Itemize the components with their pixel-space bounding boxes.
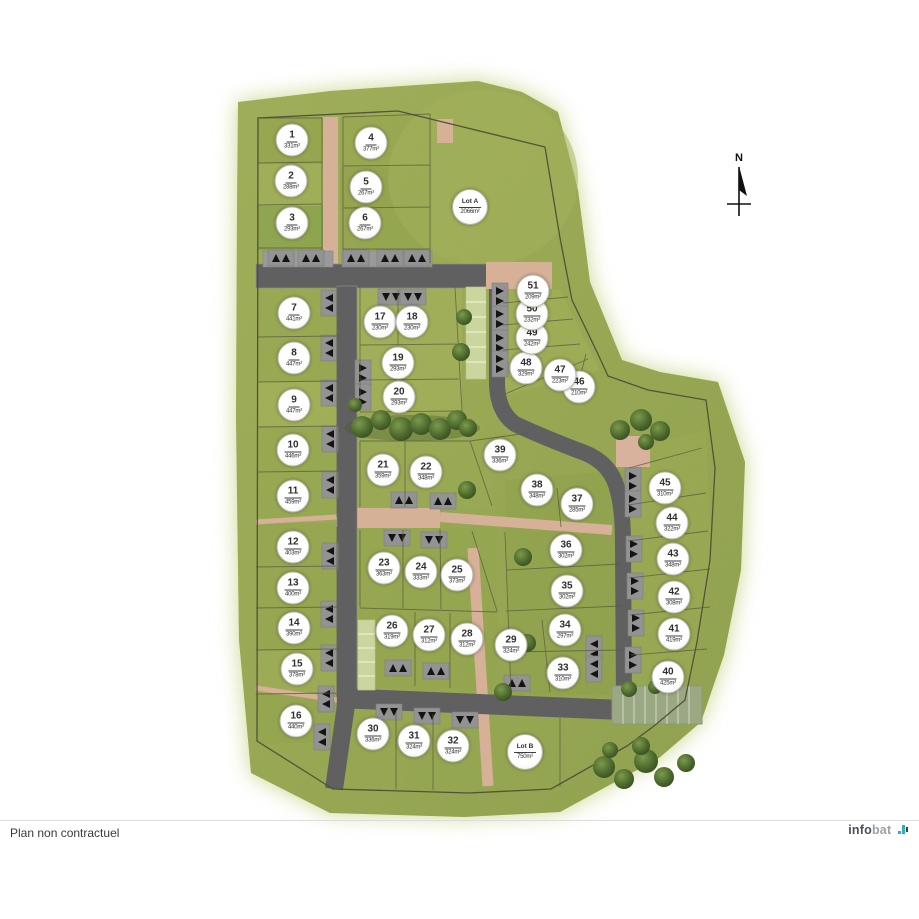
lot-number: 5	[360, 178, 372, 190]
lot-area: 293m²	[391, 401, 407, 407]
lot-number: 12	[284, 538, 301, 550]
lot-area: 425m²	[660, 681, 676, 687]
lot-area: 324m²	[406, 745, 422, 751]
lot-number: 38	[528, 481, 545, 493]
lot-label-29: 29324m²	[495, 629, 528, 662]
lot-label-38: 38348m²	[521, 474, 554, 507]
lot-area: 285m²	[569, 508, 585, 514]
lot-area: 348m²	[529, 494, 545, 500]
lot-label-14: 14390m²	[278, 612, 311, 645]
lot-label-37: 37285m²	[561, 488, 594, 521]
lot-area: 312m²	[421, 639, 437, 645]
lot-number: 43	[664, 550, 681, 562]
lot-label-39: 39336m²	[484, 439, 517, 472]
lot-number: 20	[390, 388, 407, 400]
lot-area: 333m²	[413, 576, 429, 582]
lot-number: 13	[284, 579, 301, 591]
lot-area: 336m²	[492, 459, 508, 465]
lot-label-35: 35302m²	[551, 575, 584, 608]
lot-area: 750m²	[517, 754, 533, 760]
lot-label-44: 44322m²	[656, 507, 689, 540]
lot-number: 14	[285, 619, 302, 631]
lot-label-41: 41419m²	[658, 618, 691, 651]
lot-number: 37	[568, 495, 585, 507]
lot-area: 441m²	[286, 317, 302, 323]
lot-area: 419m²	[666, 638, 682, 644]
lot-area: 267m²	[357, 227, 373, 233]
lot-label-23: 23363m²	[368, 552, 401, 585]
lot-area: 302m²	[558, 554, 574, 560]
lot-area: 390m²	[286, 632, 302, 638]
lot-label-30: 30336m²	[357, 718, 390, 751]
lot-area: 297m²	[557, 634, 573, 640]
lot-label-26: 26319m²	[376, 615, 409, 648]
lot-label-45: 45310m²	[649, 472, 682, 505]
lot-area: 446m²	[285, 454, 301, 460]
lot-area: 319m²	[384, 635, 400, 641]
lot-number: 32	[444, 737, 461, 749]
lot-label-12: 12403m²	[277, 531, 310, 564]
lot-label-13: 13400m²	[277, 572, 310, 605]
lot-label-15: 15378m²	[281, 653, 314, 686]
lot-number: 44	[663, 514, 680, 526]
lot-area: 447m²	[286, 362, 302, 368]
infobat-logo-text-dark: info	[848, 823, 872, 837]
lot-number: 48	[517, 359, 534, 371]
lot-area: 459m²	[285, 500, 301, 506]
lot-area: 378m²	[289, 673, 305, 679]
lot-number: 9	[288, 396, 300, 408]
lot-label-5: 5267m²	[350, 171, 383, 204]
footer-separator	[0, 820, 919, 821]
lot-label-4: 4377m²	[355, 127, 388, 160]
lot-label-10: 10446m²	[277, 434, 310, 467]
lot-label-21: 21359m²	[367, 454, 400, 487]
lot-area: 310m²	[657, 492, 673, 498]
lot-label-lot-b: Lot B750m²	[507, 734, 543, 770]
lot-label-31: 31324m²	[398, 725, 431, 758]
lot-label-36: 36302m²	[550, 534, 583, 567]
lot-number: 26	[383, 622, 400, 634]
lot-area: 242m²	[524, 342, 540, 348]
lot-label-2: 2288m²	[275, 165, 308, 198]
lot-label-47: 47223m²	[544, 359, 577, 392]
lot-number: 3	[286, 214, 298, 226]
lot-area: 230m²	[372, 326, 388, 332]
site-plan-page: 1331m²2288m²3293m²4377m²5267m²6267m²Lot …	[0, 0, 919, 919]
lot-area: 403m²	[285, 551, 301, 557]
lot-number: 31	[405, 732, 422, 744]
lot-number: 45	[656, 479, 673, 491]
lot-area: 331m²	[284, 144, 300, 150]
lot-label-43: 43348m²	[657, 543, 690, 576]
lot-number: 23	[375, 559, 392, 571]
lot-area: 377m²	[363, 147, 379, 153]
lot-label-42: 42308m²	[658, 581, 691, 614]
lot-number: 33	[554, 664, 571, 676]
lot-area: 302m²	[559, 595, 575, 601]
lot-number: 8	[288, 349, 300, 361]
lot-number: 19	[389, 354, 406, 366]
lot-label-27: 27312m²	[413, 619, 446, 652]
lot-area: 324m²	[503, 649, 519, 655]
infobat-logo-mark	[898, 825, 909, 834]
plan-disclaimer: Plan non contractuel	[10, 826, 119, 840]
lot-area: 2066m²	[460, 209, 479, 215]
lot-number: 41	[665, 625, 682, 637]
lot-number: 39	[491, 446, 508, 458]
lot-number: 47	[551, 366, 568, 378]
lot-area: 322m²	[664, 527, 680, 533]
lot-area: 400m²	[285, 592, 301, 598]
lot-area: 293m²	[284, 227, 300, 233]
lot-area: 329m²	[518, 372, 534, 378]
lot-area: 348m²	[665, 563, 681, 569]
lot-label-40: 40425m²	[652, 661, 685, 694]
lot-number: 2	[285, 172, 297, 184]
lot-number: 34	[556, 621, 573, 633]
lot-number: Lot B	[514, 744, 537, 753]
compass-n-label: N	[722, 152, 756, 164]
lot-number: 35	[558, 582, 575, 594]
lot-area: 230m²	[404, 326, 420, 332]
lot-number: 7	[288, 304, 300, 316]
lot-number: 24	[412, 563, 429, 575]
lot-number: 18	[403, 313, 420, 325]
lot-area: 336m²	[365, 738, 381, 744]
lot-number: 25	[448, 566, 465, 578]
lot-area: 223m²	[552, 379, 568, 385]
lot-label-32: 32324m²	[437, 730, 470, 763]
lot-area: 363m²	[376, 572, 392, 578]
lot-label-25: 25373m²	[441, 559, 474, 592]
lot-number: 42	[665, 588, 682, 600]
lot-label-33: 33310m²	[547, 657, 580, 690]
lot-area: 232m²	[524, 318, 540, 324]
lot-number: 17	[371, 313, 388, 325]
lot-label-24: 24333m²	[405, 556, 438, 589]
lot-number: 22	[417, 463, 434, 475]
lot-label-11: 11459m²	[277, 480, 310, 513]
lot-area: 312m²	[459, 643, 475, 649]
lot-number: 4	[365, 134, 377, 146]
lot-label-16: 16440m²	[280, 705, 313, 738]
lot-label-19: 19293m²	[382, 347, 415, 380]
lot-labels-layer: 1331m²2288m²3293m²4377m²5267m²6267m²Lot …	[0, 0, 919, 919]
lot-number: 29	[502, 636, 519, 648]
lot-area: 310m²	[555, 677, 571, 683]
lot-number: 11	[285, 487, 302, 499]
lot-area: 359m²	[375, 474, 391, 480]
lot-label-48: 48329m²	[510, 352, 543, 385]
lot-label-3: 3293m²	[276, 207, 309, 240]
lot-number: 27	[420, 626, 437, 638]
lot-number: 15	[288, 660, 305, 672]
lot-number: 51	[524, 282, 541, 294]
lot-number: Lot A	[459, 199, 481, 208]
lot-number: 30	[364, 725, 381, 737]
lot-number: 10	[284, 441, 301, 453]
lot-number: 36	[557, 541, 574, 553]
lot-area: 288m²	[283, 185, 299, 191]
lot-area: 308m²	[666, 601, 682, 607]
infobat-logo: infobat	[848, 823, 909, 837]
lot-area: 373m²	[449, 579, 465, 585]
lot-label-8: 8447m²	[278, 342, 311, 375]
lot-label-28: 28312m²	[451, 623, 484, 656]
lot-area: 348m²	[418, 476, 434, 482]
lot-label-9: 9447m²	[278, 389, 311, 422]
lot-number: 28	[458, 630, 475, 642]
compass: N	[722, 152, 756, 225]
lot-area: 293m²	[390, 367, 406, 373]
lot-area: 210m²	[571, 391, 587, 397]
lot-area: 209m²	[525, 295, 541, 301]
lot-label-51: 51209m²	[517, 275, 550, 308]
lot-label-22: 22348m²	[410, 456, 443, 489]
lot-area: 324m²	[445, 750, 461, 756]
lot-label-lot-a: Lot A2066m²	[452, 189, 488, 225]
north-arrow-icon	[722, 164, 756, 220]
infobat-logo-text-light: bat	[872, 823, 891, 837]
lot-label-6: 6267m²	[349, 207, 382, 240]
lot-number: 40	[659, 668, 676, 680]
lot-label-18: 18230m²	[396, 306, 429, 339]
lot-label-7: 7441m²	[278, 297, 311, 330]
lot-number: 21	[374, 461, 391, 473]
lot-number: 6	[359, 214, 371, 226]
lot-label-20: 20293m²	[383, 381, 416, 414]
lot-number: 1	[286, 131, 298, 143]
lot-label-1: 1331m²	[276, 124, 309, 157]
lot-area: 447m²	[286, 409, 302, 415]
lot-area: 267m²	[358, 191, 374, 197]
lot-area: 440m²	[288, 725, 304, 731]
lot-label-17: 17230m²	[364, 306, 397, 339]
lot-number: 16	[287, 712, 304, 724]
lot-label-34: 34297m²	[549, 614, 582, 647]
